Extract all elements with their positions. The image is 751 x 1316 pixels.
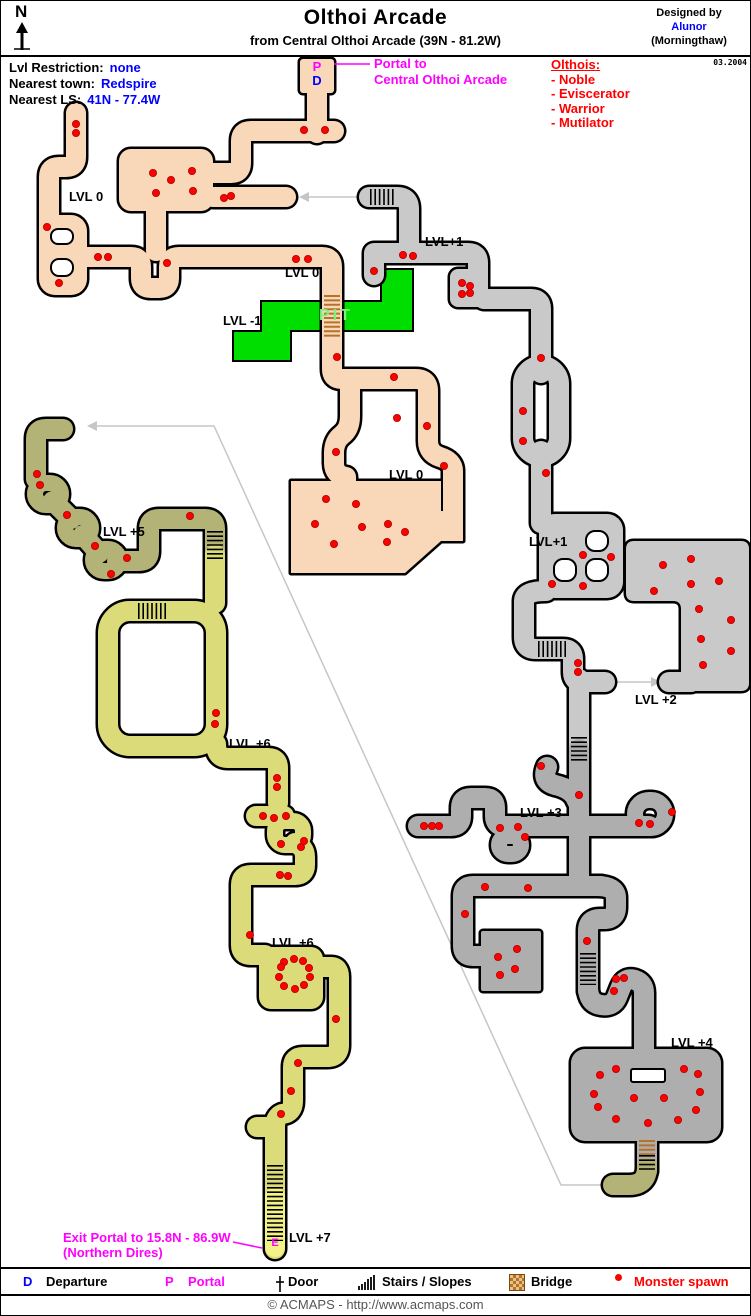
monster-spawn-dot xyxy=(304,255,311,262)
monster-spawn-dot xyxy=(466,282,473,289)
monster-spawn-dot xyxy=(330,540,337,547)
monster-spawn-dot xyxy=(575,791,582,798)
restriction-row: Lvl Restriction:none xyxy=(9,60,160,76)
monster-spawn-dot xyxy=(211,720,218,727)
map-label-lvl0-mid: LVL 0 xyxy=(389,467,423,482)
town-row: Nearest town:Redspire xyxy=(9,76,160,92)
olthoi-heading: Olthois: xyxy=(551,58,630,73)
legend-stairs-label: Stairs / Slopes xyxy=(382,1274,472,1289)
olthoi-item: - Eviscerator xyxy=(551,87,630,102)
monster-spawn-dot xyxy=(43,223,50,230)
portal-marker: P xyxy=(300,59,334,74)
monster-spawn-dot xyxy=(163,259,170,266)
legend-portal-label: Portal xyxy=(188,1274,225,1289)
monster-spawn-dot xyxy=(694,1070,701,1077)
monster-spawn-dot xyxy=(273,783,280,790)
monster-spawn-dot xyxy=(579,551,586,558)
exit-note-line1: Exit Portal to 15.8N - 86.9W xyxy=(63,1230,231,1245)
map-label-lvl1-top: LVL+1 xyxy=(425,234,463,249)
monster-spawn-dot xyxy=(458,279,465,286)
monster-spawn-dot xyxy=(583,937,590,944)
monster-spawn-dot xyxy=(280,982,287,989)
monster-spawn-dot xyxy=(401,528,408,535)
monster-spawn-dot xyxy=(275,973,282,980)
monster-spawn-dot xyxy=(305,964,312,971)
monster-spawn-dot xyxy=(481,883,488,890)
town-value: Redspire xyxy=(101,76,157,91)
monster-spawn-dot xyxy=(695,605,702,612)
monster-spawn-dot xyxy=(466,289,473,296)
monster-spawn-dot xyxy=(290,955,297,962)
olthoi-list: Olthois: - Noble - Eviscerator - Warrior… xyxy=(551,58,630,131)
monster-spawn-dot xyxy=(579,582,586,589)
map-label-lvl4: LVL +4 xyxy=(671,1035,713,1050)
monster-spawn-dot xyxy=(291,985,298,992)
monster-spawn-dot xyxy=(259,812,266,819)
monster-spawn-dot xyxy=(63,511,70,518)
monster-spawn-dot xyxy=(273,774,280,781)
portal-note-line2: Central Olthoi Arcade xyxy=(374,72,507,88)
monster-spawn-dot xyxy=(650,587,657,594)
map-label-lvl1-right: LVL+1 xyxy=(529,534,567,549)
monster-spawn-dot xyxy=(352,500,359,507)
monster-spawn-dot xyxy=(321,126,328,133)
departure-marker: D xyxy=(300,73,334,88)
monster-spawn-dot xyxy=(33,470,40,477)
monster-spawn-dot xyxy=(519,407,526,414)
monster-spawn-dot xyxy=(519,437,526,444)
monster-spawn-dot xyxy=(594,1103,601,1110)
map-label-lvl0-nw: LVL 0 xyxy=(69,189,103,204)
exit-note-line2: (Northern Dires) xyxy=(63,1245,231,1260)
olthoi-item: - Noble xyxy=(551,73,630,88)
monster-spawn-dot xyxy=(511,965,518,972)
monster-spawn-dot xyxy=(521,833,528,840)
monster-spawn-dot xyxy=(630,1094,637,1101)
ls-row: Nearest LS:41N - 77.4W xyxy=(9,92,160,108)
monster-spawn-dot xyxy=(333,353,340,360)
ls-value: 41N - 77.4W xyxy=(87,92,160,107)
dungeon-info-block: Lvl Restriction:none Nearest town:Redspi… xyxy=(9,60,160,108)
exit-marker: E xyxy=(265,1237,285,1249)
portal-note-line1: Portal to xyxy=(374,56,507,72)
monster-spawn-dot xyxy=(370,267,377,274)
monster-spawn-dot xyxy=(537,762,544,769)
monster-spawn-dot xyxy=(167,176,174,183)
monster-spawn-dot xyxy=(246,931,253,938)
monster-spawn-dot xyxy=(548,580,555,587)
legend-departure-label: Departure xyxy=(46,1274,107,1289)
monster-spawn-dot xyxy=(620,974,627,981)
dungeon-map xyxy=(1,1,751,1316)
monster-spawn-dot xyxy=(646,820,653,827)
map-label-lvl7: LVL +7 xyxy=(289,1230,331,1245)
monster-spawn-dot xyxy=(277,963,284,970)
monster-spawn-dot xyxy=(227,192,234,199)
map-label-lvl2: LVL +2 xyxy=(635,692,677,707)
monster-spawn-dot xyxy=(36,481,43,488)
monster-spawn-dot xyxy=(494,953,501,960)
legend-departure-key: D xyxy=(23,1274,32,1289)
monster-spawn-dot xyxy=(277,840,284,847)
designer-name: Alunor xyxy=(634,20,744,34)
monster-spawn-dot xyxy=(458,290,465,297)
monster-spawn-dot xyxy=(299,957,306,964)
monster-spawn-dot xyxy=(612,1115,619,1122)
monster-spawn-dot xyxy=(300,981,307,988)
monster-spawn-dot xyxy=(660,1094,667,1101)
monster-spawn-dot xyxy=(423,422,430,429)
legend-door-label: Door xyxy=(288,1274,318,1289)
monster-spawn-dot xyxy=(189,187,196,194)
restriction-label: Lvl Restriction: xyxy=(9,60,104,75)
pit-label: PIT xyxy=(271,307,401,325)
monster-spawn-dot xyxy=(311,520,318,527)
monster-spawn-dot xyxy=(390,373,397,380)
monster-spawn-dot xyxy=(212,709,219,716)
monster-spawn-dot xyxy=(383,538,390,545)
monster-spawn-dot xyxy=(574,659,581,666)
monster-spawn-dot xyxy=(149,169,156,176)
monster-spawn-dot xyxy=(680,1065,687,1072)
monster-spawn-dot xyxy=(612,1065,619,1072)
monster-spawn-dot xyxy=(393,414,400,421)
monster-spawn-dot xyxy=(524,884,531,891)
monster-spawn-dot xyxy=(727,616,734,623)
map-date: 03.2004 xyxy=(713,58,747,67)
olthoi-item: - Warrior xyxy=(551,102,630,117)
map-label-lvl6-upper: LVL +6 xyxy=(229,736,271,751)
monster-spawn-dot xyxy=(692,1106,699,1113)
monster-spawn-dot xyxy=(292,255,299,262)
map-page: N Olthoi Arcade from Central Olthoi Arca… xyxy=(0,0,751,1316)
map-label-lvl5: LVL +5 xyxy=(103,524,145,539)
monster-spawn-dot xyxy=(727,647,734,654)
monster-spawn-dot xyxy=(72,129,79,136)
monster-spawn-dot xyxy=(270,814,277,821)
monster-spawn-dot xyxy=(610,987,617,994)
monster-spawn-dot xyxy=(428,822,435,829)
monster-spawn-dot xyxy=(282,812,289,819)
map-label-lvl0-top: LVL 0 xyxy=(285,265,319,280)
map-label-lvl-minus1: LVL -1 xyxy=(223,313,262,328)
monster-spawn-dot xyxy=(496,824,503,831)
monster-spawn-dot xyxy=(674,1116,681,1123)
town-label: Nearest town: xyxy=(9,76,95,91)
ls-label: Nearest LS: xyxy=(9,92,81,107)
monster-spawn-dot xyxy=(332,1015,339,1022)
monster-spawn-dot xyxy=(104,253,111,260)
monster-spawn-dot xyxy=(668,808,675,815)
monster-spawn-dot xyxy=(107,570,114,577)
designed-by-label: Designed by xyxy=(634,6,744,20)
monster-spawn-dot xyxy=(659,561,666,568)
monster-spawn-dot xyxy=(607,553,614,560)
monster-spawn-dot xyxy=(590,1090,597,1097)
monster-spawn-dot xyxy=(697,635,704,642)
monster-spawn-dot xyxy=(287,1087,294,1094)
map-label-lvl3: LVL +3 xyxy=(520,805,562,820)
map-label-lvl6-room: LVL +6 xyxy=(272,935,314,950)
monster-spawn-dot xyxy=(537,354,544,361)
monster-spawn-dot xyxy=(635,819,642,826)
monster-spawn-dot xyxy=(461,910,468,917)
monster-spawn-dot xyxy=(514,823,521,830)
restriction-value: none xyxy=(110,60,141,75)
monster-spawn-dot xyxy=(306,973,313,980)
monster-spawn-dot xyxy=(284,872,291,879)
exit-note: Exit Portal to 15.8N - 86.9W (Northern D… xyxy=(63,1230,231,1260)
monster-spawn-dot xyxy=(55,279,62,286)
monster-spawn-dot xyxy=(644,1119,651,1126)
monster-spawn-dot xyxy=(276,871,283,878)
monster-spawn-dot xyxy=(496,971,503,978)
copyright-line: © ACMAPS - http://www.acmaps.com xyxy=(1,1292,750,1312)
monster-spawn-icon xyxy=(615,1274,622,1281)
monster-spawn-dot xyxy=(332,448,339,455)
monster-spawn-dot xyxy=(440,462,447,469)
monster-spawn-dot xyxy=(188,167,195,174)
monster-spawn-dot xyxy=(409,252,416,259)
monster-spawn-dot xyxy=(94,253,101,260)
monster-spawn-dot xyxy=(72,120,79,127)
monster-spawn-dot xyxy=(687,555,694,562)
monster-spawn-dot xyxy=(715,577,722,584)
legend-bridge-label: Bridge xyxy=(531,1274,572,1289)
monster-spawn-dot xyxy=(152,189,159,196)
monster-spawn-dot xyxy=(322,495,329,502)
designer-world: (Morningthaw) xyxy=(634,34,744,48)
bridge-icon xyxy=(509,1274,525,1291)
olthoi-item: - Mutilator xyxy=(551,116,630,131)
monster-spawn-dot xyxy=(91,542,98,549)
monster-spawn-dot xyxy=(699,661,706,668)
monster-spawn-dot xyxy=(384,520,391,527)
monster-spawn-dot xyxy=(123,554,130,561)
monster-spawn-dot xyxy=(300,126,307,133)
monster-spawn-dot xyxy=(574,668,581,675)
monster-spawn-dot xyxy=(399,251,406,258)
monster-spawn-dot xyxy=(277,1110,284,1117)
monster-spawn-dot xyxy=(358,523,365,530)
legend-portal-key: P xyxy=(165,1274,174,1289)
designer-block: Designed by Alunor (Morningthaw) xyxy=(634,6,744,48)
monster-spawn-dot xyxy=(294,1059,301,1066)
monster-spawn-dot xyxy=(513,945,520,952)
monster-spawn-dot xyxy=(186,512,193,519)
monster-spawn-dot xyxy=(300,837,307,844)
monster-spawn-dot xyxy=(687,580,694,587)
monster-spawn-dot xyxy=(435,822,442,829)
monster-spawn-dot xyxy=(596,1071,603,1078)
monster-spawn-dot xyxy=(612,975,619,982)
legend-monster-label: Monster spawn xyxy=(634,1274,729,1289)
monster-spawn-dot xyxy=(696,1088,703,1095)
portal-note: Portal to Central Olthoi Arcade xyxy=(374,56,507,88)
monster-spawn-dot xyxy=(220,194,227,201)
monster-spawn-dot xyxy=(542,469,549,476)
monster-spawn-dot xyxy=(420,822,427,829)
